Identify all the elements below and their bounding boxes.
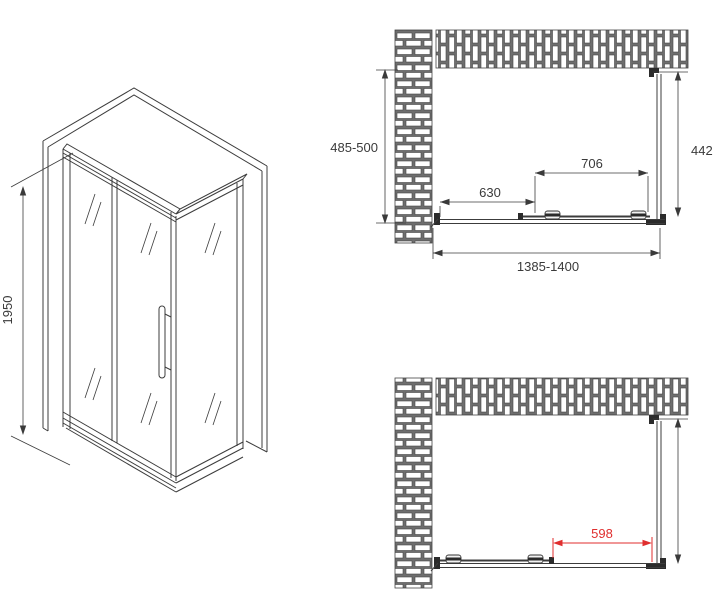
door-panel-dimension-label: 706 (581, 156, 603, 171)
iso-walls (43, 88, 267, 452)
side-panel-plan (646, 415, 666, 569)
drawing-svg: 1950 485-5 (0, 0, 722, 600)
roller (446, 555, 461, 563)
bottom-plan-view: 598 (395, 378, 688, 588)
total-width-dimension-label: 1385-1400 (517, 259, 579, 274)
glass-shine-marks (85, 194, 221, 425)
roller (545, 211, 560, 219)
side-panel-dimension: 442 (653, 71, 713, 217)
isometric-view: 1950 (0, 88, 267, 492)
side-panel-reference-dimension (653, 418, 688, 564)
track-and-door-plan (431, 211, 665, 227)
height-dimension-label: 1950 (0, 296, 15, 325)
door-panel-dimension: 706 (535, 156, 648, 213)
height-dimension: 1950 (0, 153, 73, 465)
wall-left-column (395, 30, 432, 243)
side-panel-dimension-label: 442 (691, 143, 713, 158)
iso-frame (63, 144, 247, 492)
side-panel-plan (646, 68, 666, 225)
fixed-panel-dimension-label: 630 (479, 185, 501, 200)
wall-left-column (395, 378, 432, 588)
roller (631, 211, 646, 219)
top-plan-view: 485-500 442 706 630 (330, 30, 712, 274)
total-width-dimension: 1385-1400 (433, 228, 660, 274)
track-and-door-plan (431, 555, 665, 571)
door-handle (159, 306, 171, 378)
wall-top-band (436, 30, 688, 68)
depth-dimension-label: 485-500 (330, 140, 378, 155)
technical-drawing-canvas: 1950 485-5 (0, 0, 722, 600)
fixed-panel-dimension: 630 (440, 185, 535, 217)
roller (528, 555, 543, 563)
wall-top-band (436, 378, 688, 415)
door-opening-dimension: 598 (553, 526, 652, 562)
door-opening-dimension-label: 598 (591, 526, 613, 541)
